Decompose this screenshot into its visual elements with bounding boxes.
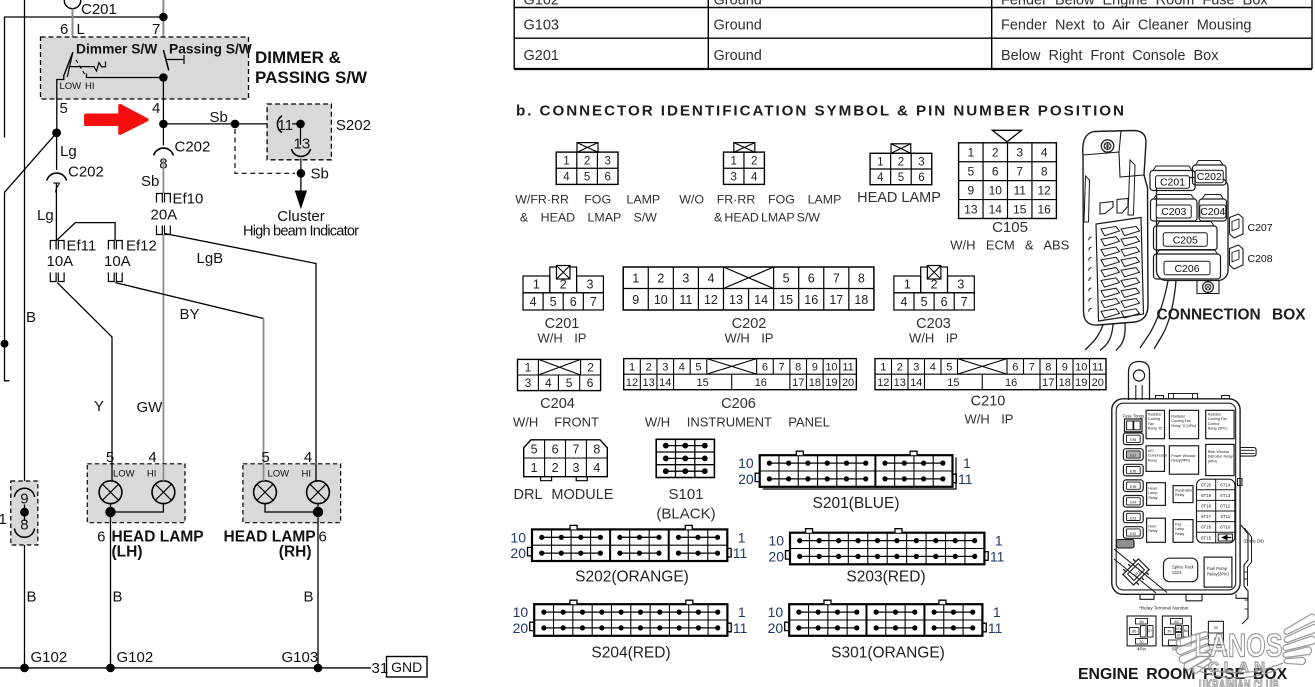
- svg-text:b. CONNECTOR IDENTIFICATION SY: b. CONNECTOR IDENTIFICATION SYMBOL & PIN…: [516, 103, 1124, 120]
- svg-text:5: 5: [60, 100, 68, 117]
- svg-text:15: 15: [1013, 202, 1027, 216]
- svg-text:5: 5: [695, 361, 701, 373]
- svg-text:C202: C202: [68, 164, 104, 181]
- svg-text:5: 5: [946, 361, 952, 373]
- svg-text:C206: C206: [721, 396, 756, 412]
- svg-text:16: 16: [755, 377, 767, 389]
- svg-text:2: 2: [897, 361, 903, 373]
- svg-text:C202: C202: [175, 139, 211, 156]
- svg-text:S204(RED): S204(RED): [591, 645, 670, 662]
- svg-text:C203: C203: [1161, 206, 1186, 218]
- svg-text:3: 3: [587, 277, 594, 291]
- svg-text:W/H FRONT: W/H FRONT: [513, 415, 599, 430]
- svg-text:10: 10: [513, 604, 529, 620]
- svg-text:1: 1: [967, 146, 974, 160]
- svg-text:85: 85: [1174, 620, 1178, 624]
- svg-text:20: 20: [738, 471, 754, 487]
- svg-text:Sb: Sb: [210, 109, 228, 126]
- svg-text:86: 86: [1132, 630, 1136, 634]
- svg-text:W/H IP: W/H IP: [725, 331, 774, 346]
- svg-text:Radiator: Radiator: [1171, 415, 1185, 419]
- svg-text:S101: S101: [1172, 570, 1182, 575]
- svg-text:Relay "A"(4Pin): Relay "A"(4Pin): [1171, 424, 1196, 428]
- svg-text:2: 2: [560, 277, 567, 291]
- svg-text:W/H ECM & ABS: W/H ECM & ABS: [950, 238, 1069, 253]
- svg-text:W/H IP: W/H IP: [909, 331, 958, 346]
- svg-text:2: 2: [931, 277, 938, 291]
- svg-text:W/H IP: W/H IP: [965, 412, 1014, 427]
- svg-text:11: 11: [958, 471, 973, 487]
- svg-text:1: 1: [738, 529, 746, 545]
- svg-text:Lg: Lg: [37, 207, 54, 224]
- svg-text:7: 7: [572, 442, 579, 456]
- svg-text:10: 10: [768, 604, 784, 620]
- svg-text:Ef12: Ef12: [126, 238, 157, 255]
- svg-text:2: 2: [657, 271, 664, 285]
- svg-text:8: 8: [795, 361, 801, 373]
- svg-text:18: 18: [854, 293, 868, 307]
- svg-text:S201(BLUE): S201(BLUE): [812, 495, 899, 512]
- svg-text:1: 1: [904, 277, 911, 291]
- svg-text:20: 20: [513, 620, 529, 636]
- svg-text:11: 11: [1092, 361, 1103, 373]
- svg-text:LgB: LgB: [197, 250, 224, 267]
- svg-text:LOW: LOW: [60, 81, 82, 92]
- svg-text:Sb: Sb: [141, 173, 159, 190]
- svg-text:12: 12: [877, 377, 889, 389]
- svg-text:6T11: 6T11: [1220, 514, 1230, 519]
- svg-text:16: 16: [1037, 202, 1051, 216]
- svg-text:20A: 20A: [151, 207, 178, 224]
- svg-text:*Relay Terminal Number: *Relay Terminal Number: [1139, 606, 1189, 611]
- svg-text:1: 1: [0, 511, 7, 528]
- svg-text:W/H INSTRUMENT PANEL: W/H INSTRUMENT PANEL: [645, 415, 830, 430]
- svg-text:Ground: Ground: [714, 18, 762, 34]
- svg-text:Ground: Ground: [714, 48, 762, 64]
- svg-text:Ef3: Ef3: [1130, 515, 1137, 520]
- svg-text:1: 1: [632, 271, 639, 285]
- svg-text:6: 6: [552, 442, 559, 456]
- svg-text:(4Pin): (4Pin): [1208, 459, 1218, 463]
- svg-text:30: 30: [1139, 640, 1143, 644]
- svg-text:5: 5: [584, 171, 590, 183]
- svg-text:Ef5: Ef5: [1130, 484, 1137, 489]
- svg-text:11: 11: [1013, 183, 1026, 197]
- svg-text:Horn: Horn: [1148, 525, 1156, 529]
- svg-text:13: 13: [294, 136, 311, 153]
- svg-text:& HEAD LMAP S/W: & HEAD LMAP S/W: [714, 211, 820, 225]
- svg-text:6: 6: [319, 529, 327, 546]
- svg-text:7: 7: [1016, 165, 1023, 179]
- svg-text:3: 3: [1016, 146, 1023, 160]
- svg-text:1: 1: [738, 604, 746, 620]
- svg-text:1: 1: [531, 461, 538, 475]
- svg-text:6: 6: [570, 295, 577, 309]
- svg-text:10A: 10A: [47, 253, 74, 270]
- svg-text:6: 6: [762, 361, 768, 373]
- svg-text:S203(RED): S203(RED): [846, 569, 925, 586]
- svg-text:19: 19: [1075, 377, 1087, 389]
- svg-text:Compressor: Compressor: [1148, 454, 1168, 458]
- svg-text:3: 3: [572, 461, 579, 475]
- svg-text:2: 2: [587, 361, 594, 375]
- svg-text:Sb: Sb: [311, 166, 329, 183]
- svg-text:6T10: 6T10: [1220, 525, 1231, 530]
- svg-text:G102: G102: [524, 0, 559, 9]
- svg-text:9: 9: [632, 293, 639, 307]
- svg-text:Relay (5Pin): Relay (5Pin): [1208, 427, 1228, 431]
- svg-text:Below Right Front Console Box: Below Right Front Console Box: [1001, 48, 1219, 64]
- svg-text:8: 8: [20, 517, 28, 534]
- svg-text:4: 4: [707, 271, 714, 285]
- svg-text:A/C: A/C: [1148, 449, 1154, 453]
- svg-text:4: 4: [1041, 146, 1048, 160]
- svg-text:G102: G102: [31, 649, 68, 666]
- svg-text:5: 5: [783, 271, 790, 285]
- svg-text:(LH): (LH): [112, 544, 143, 561]
- svg-text:86: 86: [1184, 629, 1188, 633]
- svg-text:C208: C208: [1248, 253, 1273, 265]
- svg-text:C204: C204: [540, 396, 575, 412]
- svg-text:11: 11: [988, 620, 1003, 636]
- svg-text:3: 3: [682, 271, 689, 285]
- svg-text:6T12: 6T12: [1220, 504, 1231, 509]
- svg-text:87: 87: [1177, 634, 1181, 638]
- svg-text:Lg: Lg: [60, 143, 77, 160]
- svg-text:17: 17: [792, 377, 804, 389]
- svg-text:17: 17: [1042, 377, 1054, 389]
- svg-text:6T14: 6T14: [1220, 482, 1231, 487]
- svg-text:5: 5: [550, 295, 557, 309]
- svg-text:2: 2: [751, 155, 757, 167]
- svg-text:9: 9: [1062, 361, 1068, 373]
- svg-text:Relay: Relay: [1148, 496, 1157, 500]
- svg-text:PASSING S/W: PASSING S/W: [255, 68, 368, 87]
- svg-text:C201: C201: [1160, 176, 1185, 188]
- svg-text:87a: 87a: [1176, 627, 1182, 631]
- svg-text:6: 6: [587, 376, 594, 390]
- svg-text:(BLACK): (BLACK): [656, 506, 715, 523]
- svg-text:20: 20: [768, 620, 784, 636]
- svg-text:HEAD LAMP: HEAD LAMP: [857, 190, 941, 206]
- svg-text:4: 4: [877, 172, 884, 184]
- svg-text:6T13: 6T13: [1220, 493, 1231, 498]
- svg-text:(Diode D8): (Diode D8): [1244, 539, 1265, 544]
- svg-text:6T20: 6T20: [1201, 482, 1212, 487]
- svg-text:13: 13: [729, 293, 743, 307]
- svg-text:6: 6: [604, 171, 610, 183]
- svg-text:5: 5: [921, 295, 928, 309]
- svg-text:11: 11: [990, 548, 1005, 564]
- svg-text:(RH): (RH): [279, 544, 312, 561]
- svg-text:C204: C204: [1200, 206, 1225, 218]
- svg-text:8: 8: [858, 271, 865, 285]
- svg-text:5: 5: [531, 442, 538, 456]
- svg-text:Ef6: Ef6: [1130, 469, 1137, 474]
- svg-text:10: 10: [825, 361, 837, 373]
- svg-text:18: 18: [809, 377, 821, 389]
- svg-text:DIMMER &: DIMMER &: [255, 48, 341, 67]
- svg-text:3: 3: [604, 155, 610, 167]
- svg-text:Fender Below Engine Room Fuse: Fender Below Engine Room Fuse Box: [1001, 0, 1268, 9]
- svg-text:13: 13: [964, 202, 978, 216]
- svg-text:Fog: Fog: [1175, 523, 1181, 527]
- svg-text:1: 1: [880, 361, 886, 373]
- svg-text:C105: C105: [992, 219, 1028, 236]
- svg-text:15: 15: [697, 377, 709, 389]
- svg-text:G103: G103: [524, 18, 559, 34]
- svg-text:7: 7: [152, 21, 160, 38]
- svg-text:17: 17: [829, 293, 843, 307]
- svg-text:2: 2: [646, 361, 652, 373]
- svg-text:Ef11: Ef11: [67, 238, 97, 255]
- svg-text:1: 1: [993, 604, 1001, 620]
- svg-text:Illumination: Illumination: [1175, 489, 1193, 493]
- svg-text:3: 3: [957, 277, 964, 291]
- svg-text:DRL MODULE: DRL MODULE: [514, 487, 614, 503]
- svg-text:Defroster Relay: Defroster Relay: [1208, 455, 1233, 459]
- svg-text:Lamp: Lamp: [1148, 491, 1157, 495]
- svg-text:4: 4: [152, 100, 160, 117]
- svg-text:W/O FR·RR FOG LAMP: W/O FR·RR FOG LAMP: [679, 193, 841, 207]
- svg-text:6T19: 6T19: [1201, 493, 1212, 498]
- svg-text:8: 8: [593, 442, 600, 456]
- svg-text:HI: HI: [147, 469, 157, 480]
- svg-text:8: 8: [1045, 361, 1051, 373]
- svg-text:5: 5: [898, 172, 904, 184]
- svg-text:B: B: [113, 589, 123, 606]
- svg-text:Fender Next to Air Cleaner Mou: Fender Next to Air Cleaner Mousing: [1001, 18, 1252, 34]
- svg-text:G102: G102: [117, 649, 154, 666]
- svg-text:30: 30: [1167, 630, 1171, 634]
- svg-text:11: 11: [278, 117, 294, 134]
- svg-text:1: 1: [877, 156, 883, 168]
- svg-text:2: 2: [898, 156, 904, 168]
- svg-text:Cooling Fan: Cooling Fan: [1208, 417, 1227, 421]
- svg-text:11: 11: [733, 545, 748, 561]
- svg-text:8: 8: [1041, 165, 1048, 179]
- svg-text:6T18: 6T18: [1201, 504, 1212, 509]
- svg-text:87: 87: [1148, 629, 1152, 633]
- svg-text:Relay: Relay: [1175, 493, 1184, 497]
- svg-text:14: 14: [754, 293, 768, 307]
- svg-text:Relay(4Pin): Relay(4Pin): [1171, 459, 1190, 463]
- svg-text:12: 12: [1037, 183, 1051, 197]
- svg-text:19: 19: [825, 377, 837, 389]
- svg-text:6: 6: [918, 172, 924, 184]
- svg-text:4: 4: [930, 361, 936, 373]
- svg-text:10: 10: [738, 455, 754, 471]
- svg-text:12: 12: [626, 377, 638, 389]
- svg-text:Control: Control: [1208, 422, 1220, 426]
- svg-text:Radiator: Radiator: [1148, 413, 1162, 417]
- svg-text:7: 7: [833, 271, 840, 285]
- svg-text:HI: HI: [302, 469, 312, 480]
- svg-text:G201: G201: [524, 48, 559, 64]
- svg-text:1: 1: [629, 361, 635, 373]
- svg-text:S202: S202: [336, 117, 371, 134]
- svg-text:31: 31: [372, 660, 389, 677]
- svg-text:5: 5: [261, 449, 269, 466]
- svg-text:7: 7: [590, 295, 597, 309]
- svg-text:9: 9: [812, 361, 818, 373]
- svg-text:Relay: Relay: [1148, 458, 1157, 462]
- svg-text:3: 3: [731, 171, 737, 183]
- svg-text:Ef10: Ef10: [173, 191, 204, 208]
- svg-text:9: 9: [967, 183, 974, 197]
- svg-text:Lamp: Lamp: [1175, 527, 1184, 531]
- svg-text:7: 7: [1029, 361, 1035, 373]
- svg-text:Ef4: Ef4: [1130, 500, 1137, 505]
- svg-text:CONNECTION BOX: CONNECTION BOX: [1157, 307, 1307, 324]
- svg-text:13: 13: [894, 377, 906, 389]
- svg-text:20: 20: [1092, 377, 1104, 389]
- svg-text:7: 7: [779, 361, 785, 373]
- svg-text:13: 13: [643, 377, 655, 389]
- svg-text:6: 6: [992, 165, 999, 179]
- svg-text:B: B: [26, 309, 36, 326]
- svg-text:Relay(3Pin): Relay(3Pin): [1207, 571, 1229, 576]
- svg-text:LOW: LOW: [268, 469, 290, 480]
- svg-text:16: 16: [1005, 377, 1017, 389]
- svg-text:W/FR·RR FOG LAMP: W/FR·RR FOG LAMP: [515, 193, 660, 207]
- svg-text:B: B: [27, 589, 37, 606]
- svg-text:3: 3: [918, 156, 924, 168]
- svg-text:B: B: [304, 589, 314, 606]
- svg-text:10: 10: [1075, 361, 1087, 373]
- svg-text:85: 85: [1139, 620, 1143, 624]
- svg-text:18: 18: [1059, 377, 1071, 389]
- svg-text:4: 4: [593, 461, 600, 475]
- svg-text:6: 6: [1012, 361, 1018, 373]
- svg-text:1: 1: [525, 361, 532, 375]
- svg-text:G103: G103: [282, 649, 319, 666]
- svg-text:High beam Indicator: High beam Indicator: [243, 224, 359, 240]
- svg-text:BY: BY: [180, 306, 200, 323]
- svg-text:1: 1: [963, 455, 971, 471]
- svg-text:3: 3: [913, 361, 919, 373]
- svg-text:S301(ORANGE): S301(ORANGE): [831, 645, 945, 662]
- svg-text:11: 11: [679, 293, 692, 307]
- svg-text:Rear Window: Rear Window: [1208, 450, 1230, 454]
- svg-text:Fuse Tongs: Fuse Tongs: [1123, 413, 1145, 418]
- svg-text:C210: C210: [971, 394, 1006, 410]
- svg-text:LOW: LOW: [113, 469, 135, 480]
- svg-text:15: 15: [947, 377, 959, 389]
- svg-text:2: 2: [992, 146, 999, 160]
- svg-text:Fan: Fan: [1148, 422, 1154, 426]
- svg-text:S202(ORANGE): S202(ORANGE): [575, 569, 689, 586]
- svg-text:Radiator: Radiator: [1208, 413, 1222, 417]
- svg-text:5: 5: [967, 165, 974, 179]
- svg-text:S101: S101: [668, 486, 703, 503]
- svg-text:W/H IP: W/H IP: [538, 331, 587, 346]
- svg-text:10: 10: [510, 529, 526, 545]
- svg-text:& HEAD LMAP S/W: & HEAD LMAP S/W: [520, 211, 657, 225]
- svg-text:4: 4: [148, 449, 156, 466]
- svg-text:16: 16: [804, 293, 818, 307]
- svg-text:GW: GW: [137, 399, 164, 416]
- svg-text:GND: GND: [391, 659, 422, 675]
- svg-text:4Pin: 4Pin: [1137, 647, 1146, 652]
- svg-text:Relay: Relay: [1148, 529, 1157, 533]
- svg-text:2: 2: [584, 155, 590, 167]
- svg-text:C205: C205: [1173, 234, 1198, 246]
- svg-text:1: 1: [995, 533, 1003, 549]
- svg-text:6T15: 6T15: [1201, 535, 1212, 540]
- svg-text:14: 14: [989, 202, 1003, 216]
- svg-text:C206: C206: [1174, 263, 1199, 275]
- svg-text:20: 20: [510, 545, 526, 561]
- svg-text:14: 14: [910, 377, 922, 389]
- svg-text:CLAN: CLAN: [1208, 659, 1270, 676]
- svg-text:6T16: 6T16: [1201, 525, 1212, 530]
- svg-text:Relay "B": Relay "B": [1148, 427, 1164, 431]
- svg-text:Passing S/W: Passing S/W: [169, 42, 253, 57]
- svg-text:10: 10: [989, 183, 1003, 197]
- svg-text:C202: C202: [1197, 171, 1222, 183]
- svg-text:10: 10: [768, 533, 784, 549]
- svg-text:L: L: [77, 21, 85, 38]
- svg-text:Ef8: Ef8: [1130, 437, 1137, 442]
- svg-text:4: 4: [530, 295, 537, 309]
- svg-text:4: 4: [563, 171, 570, 183]
- svg-text:11: 11: [842, 361, 853, 373]
- svg-text:10: 10: [654, 293, 668, 307]
- svg-text:6: 6: [941, 295, 948, 309]
- svg-text:C201: C201: [81, 1, 117, 18]
- svg-text:10A: 10A: [104, 253, 131, 270]
- svg-text:1: 1: [731, 155, 737, 167]
- svg-text:4: 4: [751, 171, 758, 183]
- svg-text:UKRAINIAN CLUB: UKRAINIAN CLUB: [1199, 678, 1279, 687]
- svg-text:Power Window: Power Window: [1171, 454, 1195, 458]
- svg-text:5: 5: [566, 376, 573, 390]
- svg-text:Relay: Relay: [1175, 532, 1184, 536]
- svg-text:6: 6: [60, 21, 68, 38]
- svg-text:C207: C207: [1248, 222, 1273, 234]
- svg-text:5: 5: [106, 449, 114, 466]
- svg-text:Y: Y: [94, 398, 104, 415]
- svg-text:3: 3: [525, 376, 532, 390]
- svg-text:2: 2: [552, 461, 559, 475]
- svg-text:Ef7: Ef7: [1130, 453, 1137, 458]
- svg-text:6T17: 6T17: [1201, 514, 1212, 519]
- svg-text:6: 6: [808, 271, 815, 285]
- svg-text:HI: HI: [85, 81, 95, 92]
- svg-text:6: 6: [97, 529, 105, 546]
- svg-text:20: 20: [842, 377, 854, 389]
- svg-text:7: 7: [961, 295, 968, 309]
- svg-text:Dimmer S/W: Dimmer S/W: [76, 42, 158, 57]
- svg-text:12: 12: [704, 293, 718, 307]
- svg-text:14: 14: [659, 377, 671, 389]
- svg-text:Cooling: Cooling: [1148, 417, 1160, 421]
- svg-text:Cluster: Cluster: [277, 208, 325, 225]
- svg-text:Cooling Fan: Cooling Fan: [1171, 419, 1190, 423]
- svg-text:Ground: Ground: [714, 0, 762, 9]
- svg-text:4: 4: [545, 376, 552, 390]
- svg-text:1: 1: [533, 277, 540, 291]
- svg-text:4: 4: [900, 295, 907, 309]
- svg-text:Fuel Pump: Fuel Pump: [1207, 566, 1228, 571]
- svg-text:3: 3: [662, 361, 668, 373]
- svg-text:1: 1: [563, 155, 569, 167]
- svg-text:Head: Head: [1148, 487, 1157, 491]
- svg-text:4: 4: [304, 449, 312, 466]
- svg-text:4: 4: [679, 361, 685, 373]
- svg-text:15: 15: [779, 293, 793, 307]
